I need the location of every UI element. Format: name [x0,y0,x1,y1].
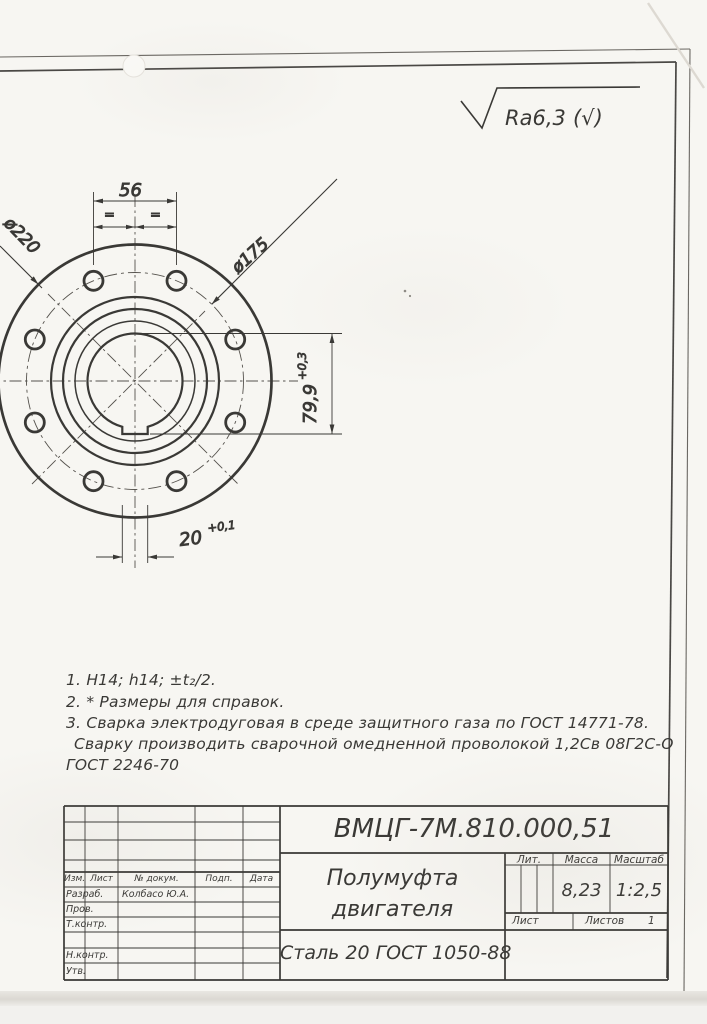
note-line: 3. Сварка электродуговая в среде защитно… [66,714,649,732]
approved-label: Утв. [66,966,86,977]
dim-bore-keyway-depth-tol: +0,3 [295,352,309,380]
mass-label: Масса [553,854,610,866]
eq-mark-left: = [104,208,115,223]
list-header: Лист [85,874,118,884]
flange-drawing: ø220 ø175 56 = = [0,179,342,568]
n-control-label: Н.контр. [66,950,109,961]
surface-finish-reference: (√) [573,106,603,130]
dim-hole-pair-spacing: 56 [119,180,142,201]
sheets-count: 1 [648,915,655,927]
sheet-bottom-edge [0,991,707,1006]
lit-label: Лит. [505,854,553,866]
sheet-label: Лист [512,915,539,927]
checked-label: Пров. [66,904,94,915]
developed-label: Разраб. [66,889,103,900]
t-control-label: Т.контр. [66,919,107,930]
doc-no-header: № докум. [118,874,195,884]
note-line: 1. H14; h14; ±t₂/2. [66,671,216,689]
dim-keyway-width-tol: +0,1 [207,518,236,535]
scanned-drawing-sheet: Ra6,3 (√) [0,0,707,1024]
part-name-line2: двигателя [280,897,505,922]
izm-header: Изм. [64,874,85,884]
scan-specks [404,290,411,297]
surface-finish-mark: Ra6,3 (√) [461,87,640,130]
developer-name: Колбасо Ю.А. [122,889,189,900]
document-designation: ВМЦГ-7М.810.000,51 [280,814,668,844]
dim-bolt-circle-diameter: ø175 [227,234,273,278]
sheet-frame [0,49,690,993]
mass-value: 8,23 [553,880,610,901]
surface-finish-value: Ra6,3 [505,106,566,130]
punch-hole [123,55,145,77]
dim-bore-keyway-depth: 79,9 [300,384,321,424]
scale-value: 1:2,5 [610,880,668,901]
dim-outer-diameter: ø220 [0,213,44,258]
note-line: ГОСТ 2246-70 [66,756,179,774]
note-line: 2. * Размеры для справок. [66,693,285,711]
leader-diameter-220: ø220 [0,213,44,288]
sheets-label: Листов [585,915,624,927]
part-name-line1: Полумуфта [280,866,505,891]
material-spec: Сталь 20 ГОСТ 1050-88 [280,942,505,964]
date-header: Дата [243,874,280,884]
leader-diameter-175: ø175 [212,179,337,304]
scale-label: Масштаб [610,854,668,866]
eq-mark-right: = [150,208,161,223]
scanner-background [0,1006,707,1024]
dim-keyway-width: 20 [178,527,203,551]
note-line: Сварку производить сварочной омедненной … [74,735,674,753]
sign-header: Подп. [195,874,243,884]
